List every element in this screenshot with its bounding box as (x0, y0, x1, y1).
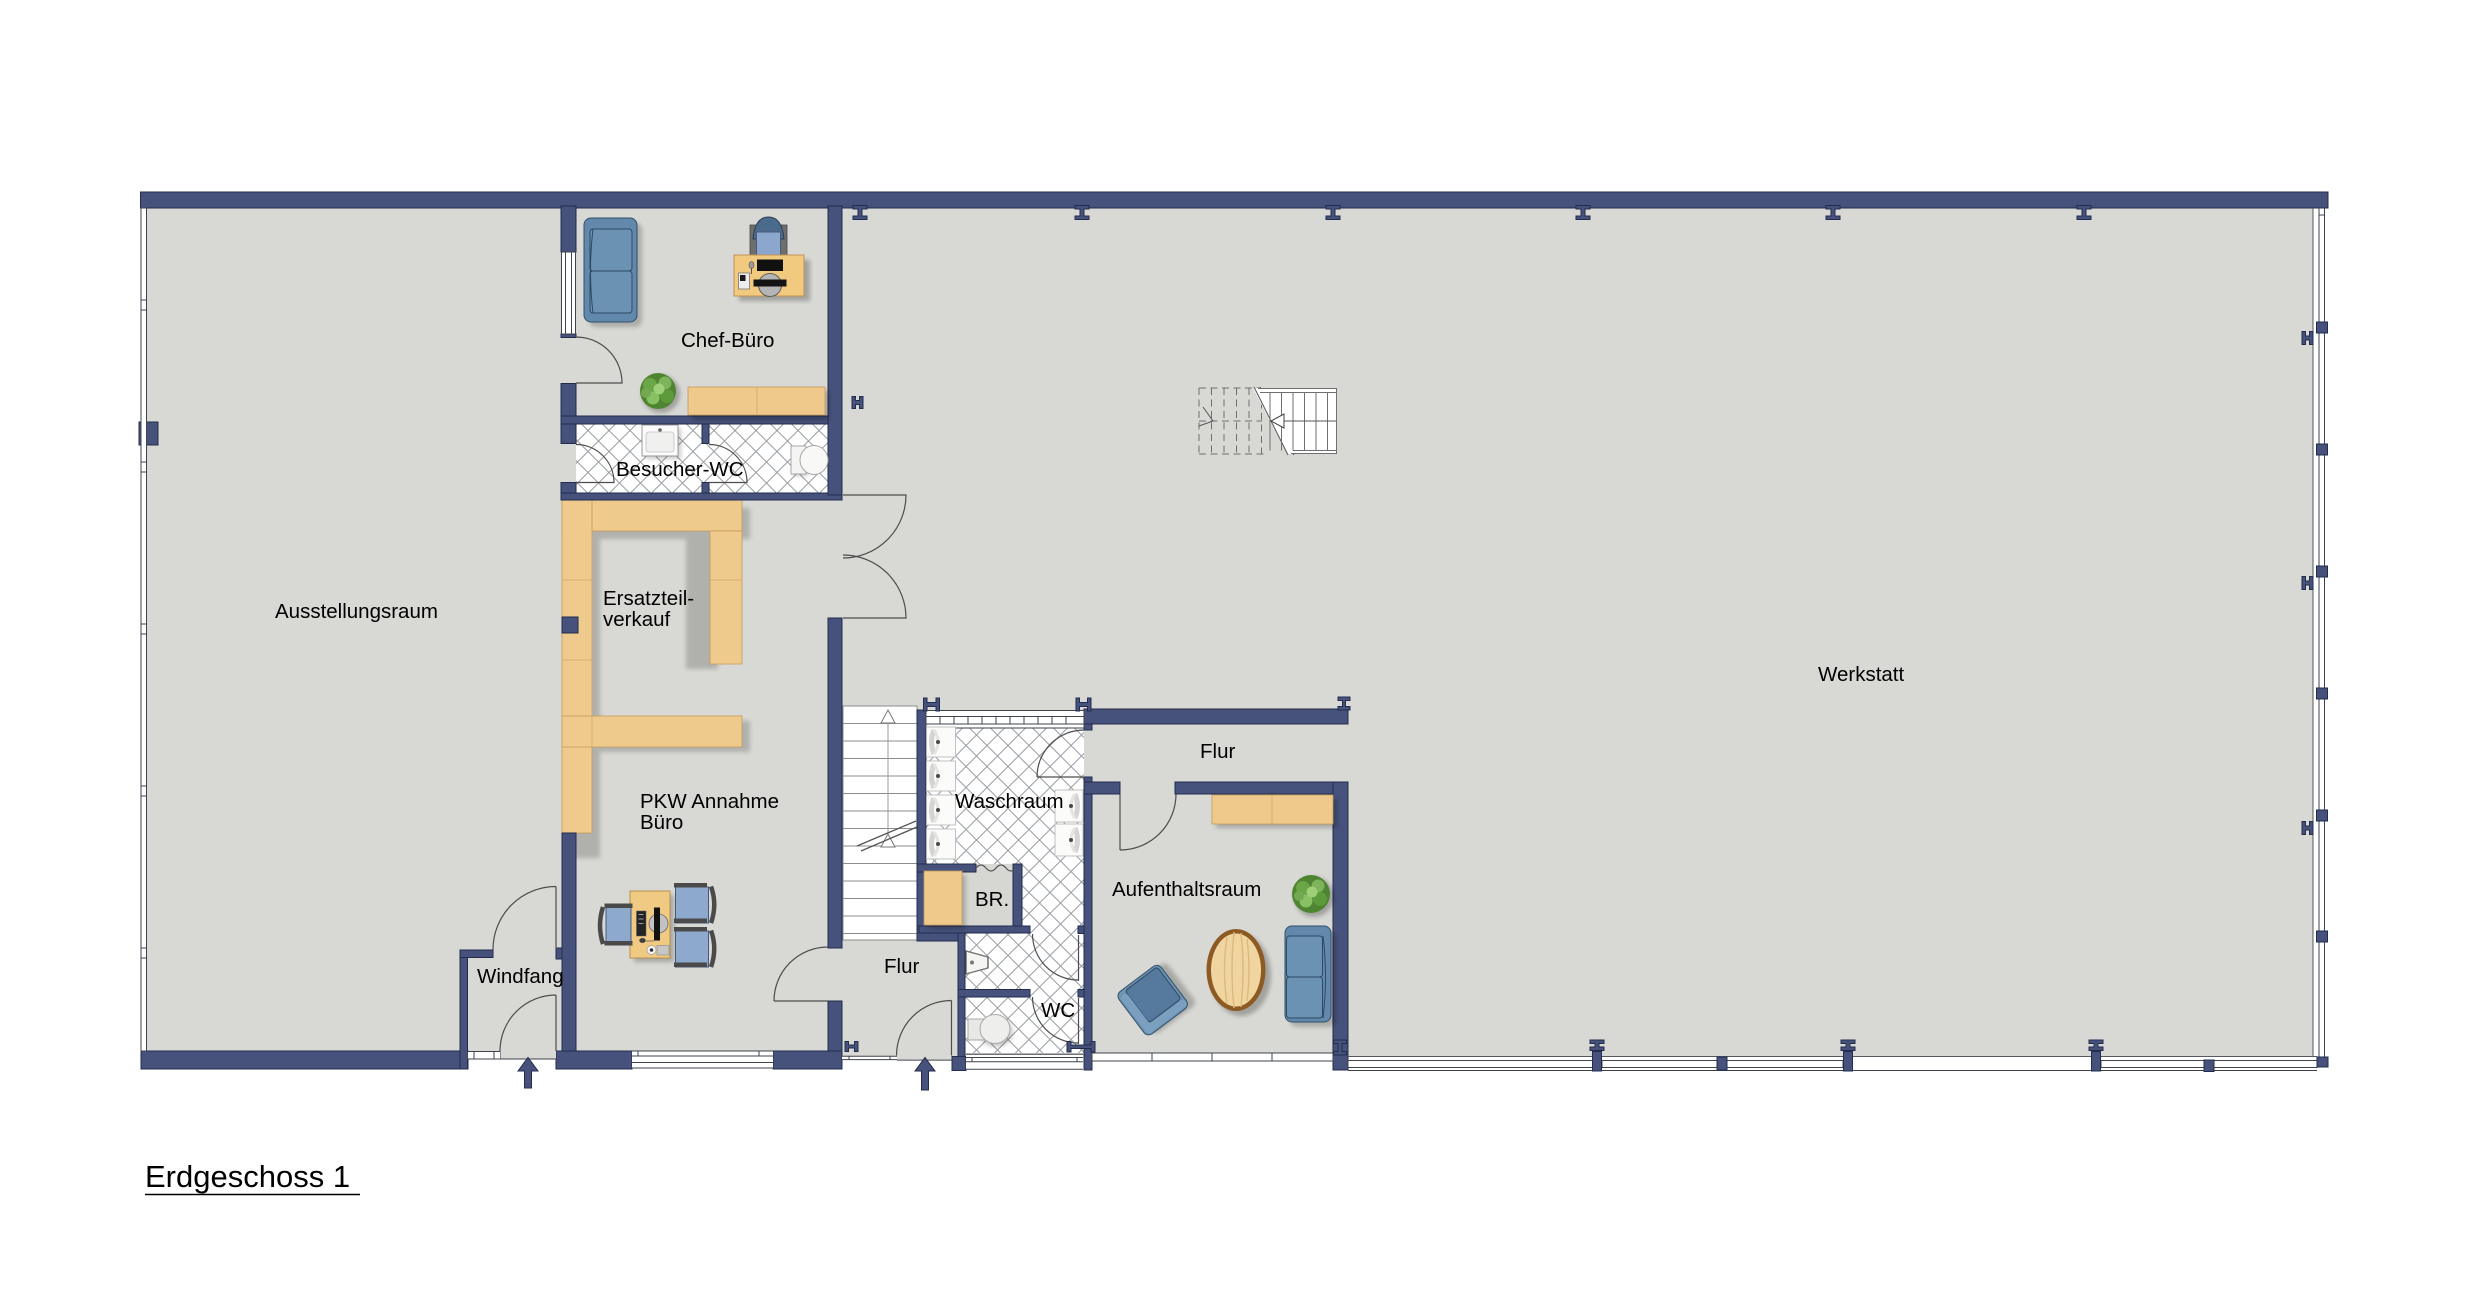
svg-text:Ausstellungsraum: Ausstellungsraum (275, 600, 438, 623)
svg-text:WC: WC (1041, 999, 1075, 1022)
svg-text:Windfang: Windfang (477, 965, 564, 988)
svg-text:Flur: Flur (884, 955, 919, 978)
svg-text:BR.: BR. (975, 888, 1009, 911)
svg-text:Aufenthaltsraum: Aufenthaltsraum (1112, 878, 1261, 901)
svg-text:Erdgeschoss 1: Erdgeschoss 1 (145, 1159, 350, 1194)
svg-text:Waschraum: Waschraum (955, 790, 1064, 813)
svg-text:Werkstatt: Werkstatt (1818, 663, 1904, 686)
svg-text:Flur: Flur (1200, 740, 1235, 763)
svg-text:Chef-Büro: Chef-Büro (681, 329, 774, 352)
svg-text:Besucher-WC: Besucher-WC (616, 458, 744, 481)
